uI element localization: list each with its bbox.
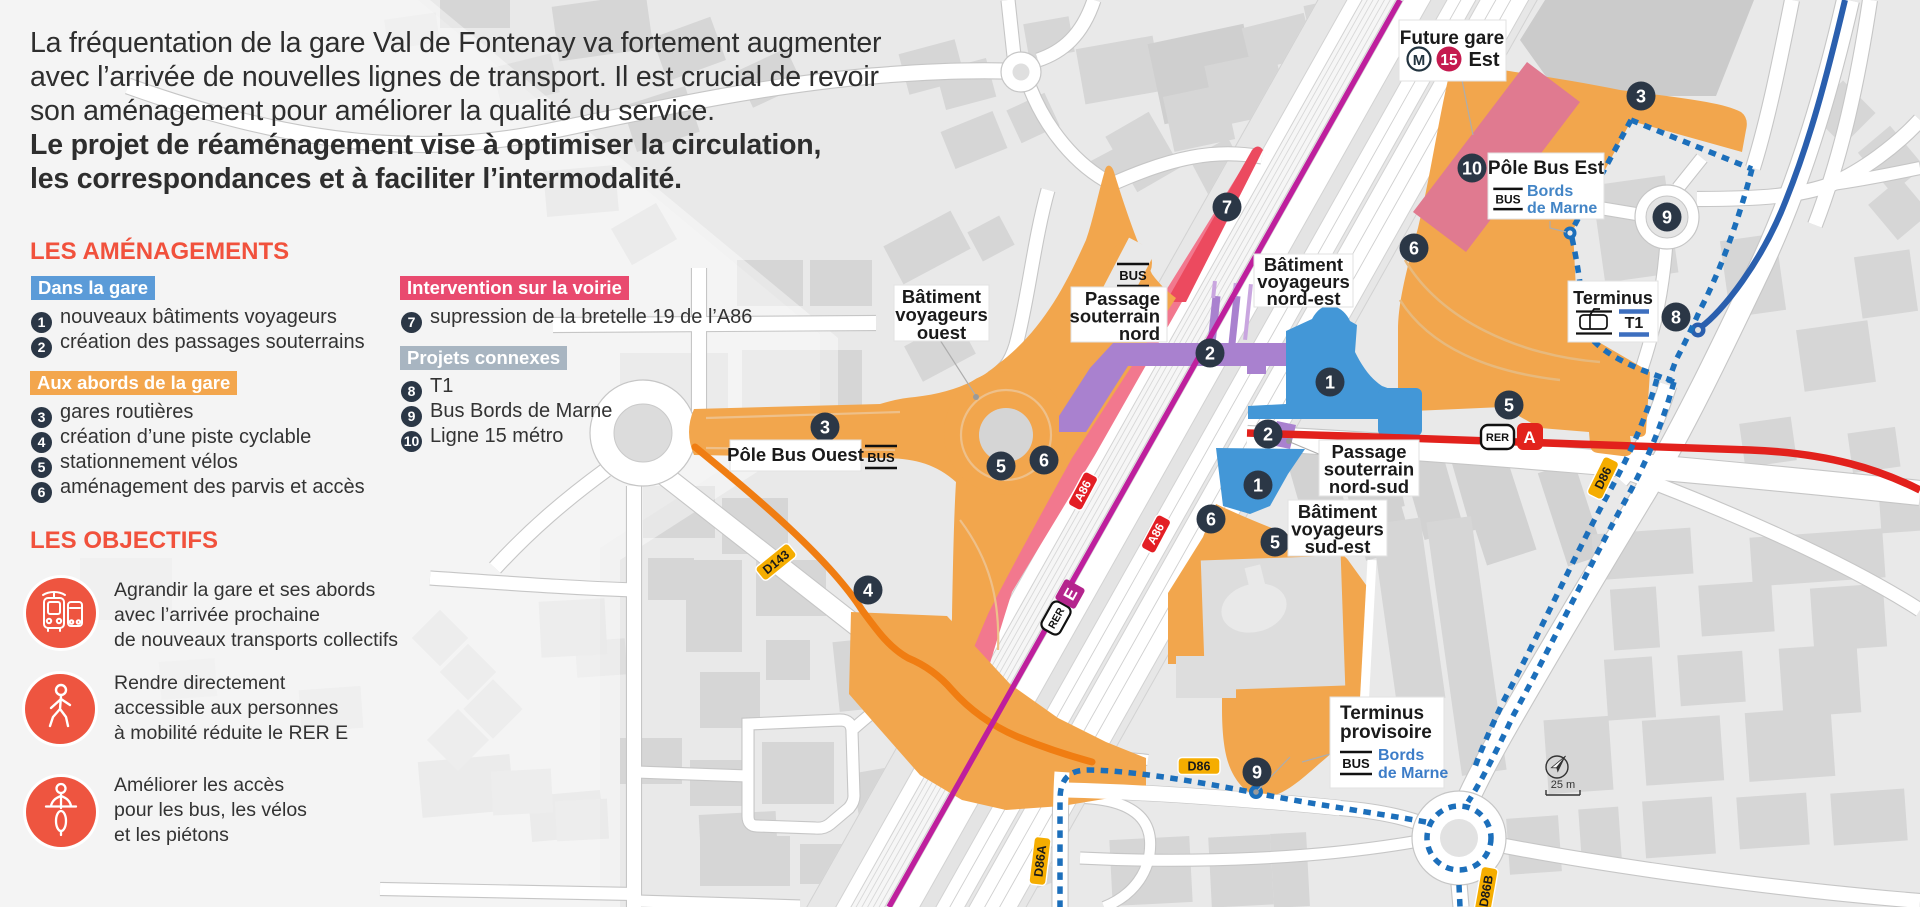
svg-text:T1: T1: [1625, 315, 1644, 332]
svg-text:BUS: BUS: [867, 450, 895, 465]
svg-text:2: 2: [1205, 344, 1215, 364]
svg-text:M: M: [1413, 52, 1426, 69]
svg-text:3: 3: [820, 418, 830, 438]
svg-text:nord-est: nord-est: [1267, 288, 1341, 309]
svg-text:BUS: BUS: [1495, 193, 1520, 207]
svg-text:8: 8: [1671, 308, 1681, 328]
svg-text:D86: D86: [1188, 759, 1211, 773]
svg-text:9: 9: [1662, 208, 1672, 228]
svg-text:provisoire: provisoire: [1340, 722, 1432, 743]
svg-text:5: 5: [1270, 533, 1280, 553]
svg-text:1: 1: [1325, 373, 1335, 393]
svg-text:BUS: BUS: [1119, 268, 1147, 283]
svg-text:5: 5: [996, 457, 1006, 477]
svg-text:de Marne: de Marne: [1378, 765, 1448, 782]
svg-text:Terminus: Terminus: [1573, 288, 1653, 308]
svg-text:4: 4: [863, 581, 873, 601]
svg-text:6: 6: [1039, 451, 1049, 471]
svg-text:5: 5: [1504, 396, 1514, 416]
svg-text:Future gare: Future gare: [1400, 28, 1505, 49]
svg-text:6: 6: [1409, 239, 1419, 259]
svg-text:Est: Est: [1468, 49, 1499, 71]
svg-text:Pôle Bus Est: Pôle Bus Est: [1488, 158, 1605, 179]
svg-text:15: 15: [1440, 52, 1458, 69]
svg-text:BUS: BUS: [1342, 756, 1370, 771]
svg-text:Terminus: Terminus: [1340, 703, 1424, 724]
svg-text:6: 6: [1206, 510, 1216, 530]
svg-text:de Marne: de Marne: [1527, 200, 1597, 217]
svg-text:7: 7: [1222, 198, 1232, 218]
svg-text:nord-sud: nord-sud: [1329, 476, 1409, 497]
svg-text:A: A: [1523, 428, 1535, 447]
svg-text:Pôle Bus Ouest: Pôle Bus Ouest: [727, 444, 864, 465]
svg-text:3: 3: [1636, 87, 1646, 107]
svg-text:25 m: 25 m: [1551, 779, 1575, 791]
svg-text:ouest: ouest: [917, 322, 966, 343]
svg-text:2: 2: [1263, 425, 1273, 445]
svg-text:9: 9: [1252, 763, 1262, 783]
svg-text:nord: nord: [1119, 323, 1160, 344]
svg-text:1: 1: [1253, 476, 1263, 496]
svg-text:RER: RER: [1486, 432, 1509, 444]
svg-text:sud-est: sud-est: [1305, 536, 1371, 557]
svg-text:Bords: Bords: [1527, 183, 1573, 200]
svg-text:Bords: Bords: [1378, 747, 1424, 764]
svg-text:10: 10: [1462, 159, 1482, 179]
